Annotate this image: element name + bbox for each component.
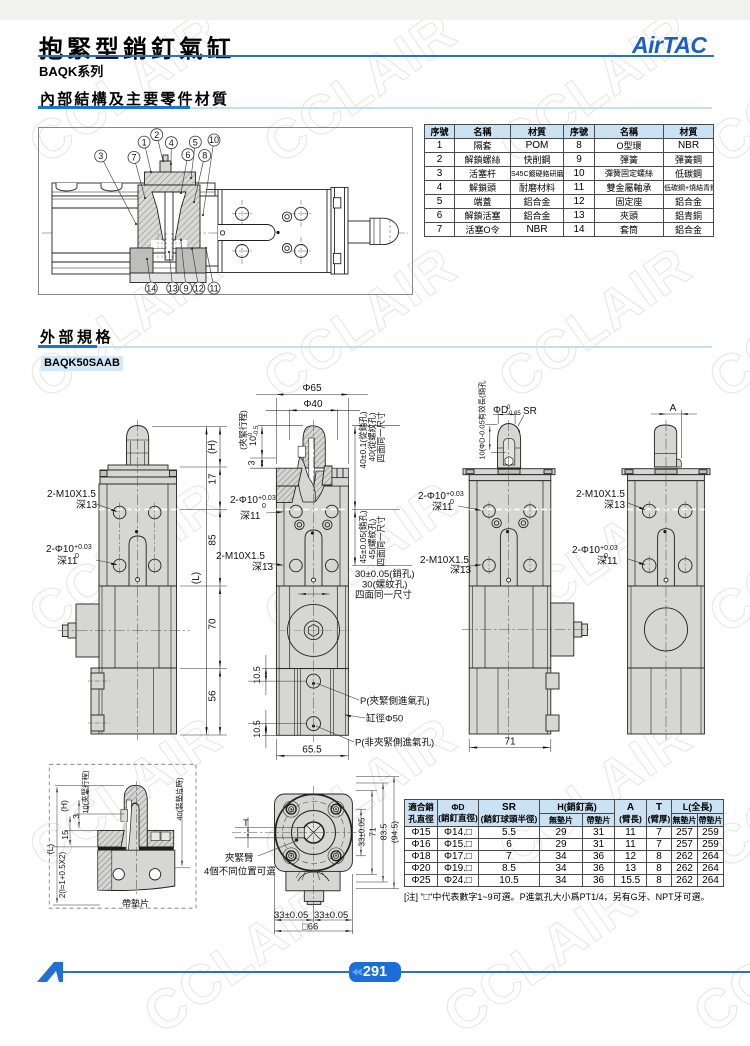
svg-text:A: A — [670, 403, 677, 414]
svg-text:深11: 深11 — [240, 510, 261, 522]
svg-text:30(螺紋孔): 30(螺紋孔) — [362, 579, 407, 591]
svg-text:13: 13 — [168, 283, 178, 293]
svg-text:0: 0 — [262, 503, 266, 510]
svg-text:17: 17 — [208, 473, 219, 485]
svg-text:10: 10 — [248, 436, 258, 446]
svg-text:P(夾緊側進氣孔): P(夾緊側進氣孔) — [360, 695, 430, 707]
svg-text:深13: 深13 — [76, 499, 98, 511]
svg-text:Φ40: Φ40 — [303, 399, 323, 410]
svg-text:2-Φ10+0.03: 2-Φ10+0.03 — [46, 544, 92, 555]
svg-text:14: 14 — [146, 283, 156, 293]
svg-text:四面同一尺寸: 四面同一尺寸 — [376, 515, 386, 567]
svg-text:4個不同位置可選: 4個不同位置可選 — [204, 866, 276, 878]
svg-text:33±0.05: 33±0.05 — [314, 910, 348, 921]
svg-text:8: 8 — [202, 151, 207, 161]
svg-text:深13: 深13 — [604, 499, 626, 511]
svg-text:四面同一尺寸: 四面同一尺寸 — [355, 589, 413, 601]
svg-text:缸徑Φ50: 缸徑Φ50 — [366, 713, 403, 725]
svg-text:深11: 深11 — [432, 501, 453, 513]
svg-text:深11: 深11 — [597, 555, 618, 567]
svg-text:10.5: 10.5 — [252, 720, 262, 738]
svg-text:1: 1 — [142, 137, 147, 147]
svg-text:33±0.05: 33±0.05 — [274, 910, 308, 921]
svg-text:2: 2 — [154, 130, 159, 140]
svg-text:15: 15 — [60, 830, 70, 840]
svg-text:2-M10X1.5: 2-M10X1.5 — [47, 489, 96, 500]
svg-text:(L): (L) — [191, 572, 202, 584]
svg-text:71: 71 — [368, 827, 378, 837]
svg-text:SR: SR — [523, 406, 537, 417]
svg-text:10(ΦD-0.05有效長(銷孔: 10(ΦD-0.05有效長(銷孔 — [477, 380, 487, 460]
svg-text:9: 9 — [183, 283, 188, 293]
svg-text:7: 7 — [131, 153, 136, 163]
svg-text:6: 6 — [185, 150, 190, 160]
svg-text:3: 3 — [247, 460, 257, 465]
svg-text:深11: 深11 — [57, 555, 78, 567]
svg-text:10.5: 10.5 — [252, 666, 262, 684]
svg-text:65.5: 65.5 — [302, 745, 322, 756]
svg-text:70: 70 — [208, 618, 219, 630]
svg-text:5: 5 — [193, 137, 198, 147]
svg-text:深13: 深13 — [252, 561, 274, 573]
svg-text:71: 71 — [504, 737, 516, 748]
svg-text:-0.05: -0.05 — [507, 411, 521, 417]
svg-text:P(非夾緊側進氣孔): P(非夾緊側進氣孔) — [355, 737, 434, 749]
svg-text:11: 11 — [209, 283, 218, 293]
svg-text:□66: □66 — [302, 922, 318, 933]
svg-text:2-M10X1.5: 2-M10X1.5 — [216, 551, 265, 562]
svg-text:2-M10X1.5: 2-M10X1.5 — [576, 489, 625, 500]
svg-text:(L): (L) — [45, 844, 55, 855]
svg-text:83.5: 83.5 — [379, 823, 389, 840]
svg-text:3: 3 — [98, 151, 103, 161]
svg-text:(夾緊行程): (夾緊行程) — [238, 410, 248, 450]
svg-text:3: 3 — [71, 814, 81, 819]
svg-text:4: 4 — [169, 138, 174, 148]
svg-text:85: 85 — [208, 534, 219, 546]
svg-text:12: 12 — [194, 283, 204, 293]
svg-text:四面同一尺寸: 四面同一尺寸 — [376, 411, 386, 463]
svg-text:(94.5): (94.5) — [390, 821, 400, 843]
svg-text:(H): (H) — [207, 440, 218, 454]
svg-text:2-Φ10+0.03: 2-Φ10+0.03 — [418, 491, 464, 502]
svg-text:56: 56 — [208, 690, 219, 702]
svg-text:33±0.05: 33±0.05 — [358, 817, 367, 846]
svg-text:T: T — [243, 818, 249, 829]
svg-text:2-Φ10+0.03: 2-Φ10+0.03 — [572, 545, 618, 556]
svg-text:2-Φ10+0.03: 2-Φ10+0.03 — [230, 495, 276, 506]
svg-text:10: 10 — [209, 135, 219, 145]
svg-text:夾緊臂: 夾緊臂 — [225, 852, 254, 864]
svg-text:30±0.05(銷孔): 30±0.05(銷孔) — [355, 568, 415, 580]
svg-text:-0.5: -0.5 — [254, 425, 260, 436]
svg-text:帶墊片: 帶墊片 — [122, 898, 149, 909]
svg-text:40(裝墊片時): 40(裝墊片時) — [174, 777, 184, 821]
svg-text:(H): (H) — [59, 800, 69, 812]
svg-text:2(l=1+0.5X2): 2(l=1+0.5X2) — [58, 852, 67, 899]
svg-text:Φ65: Φ65 — [302, 383, 322, 394]
